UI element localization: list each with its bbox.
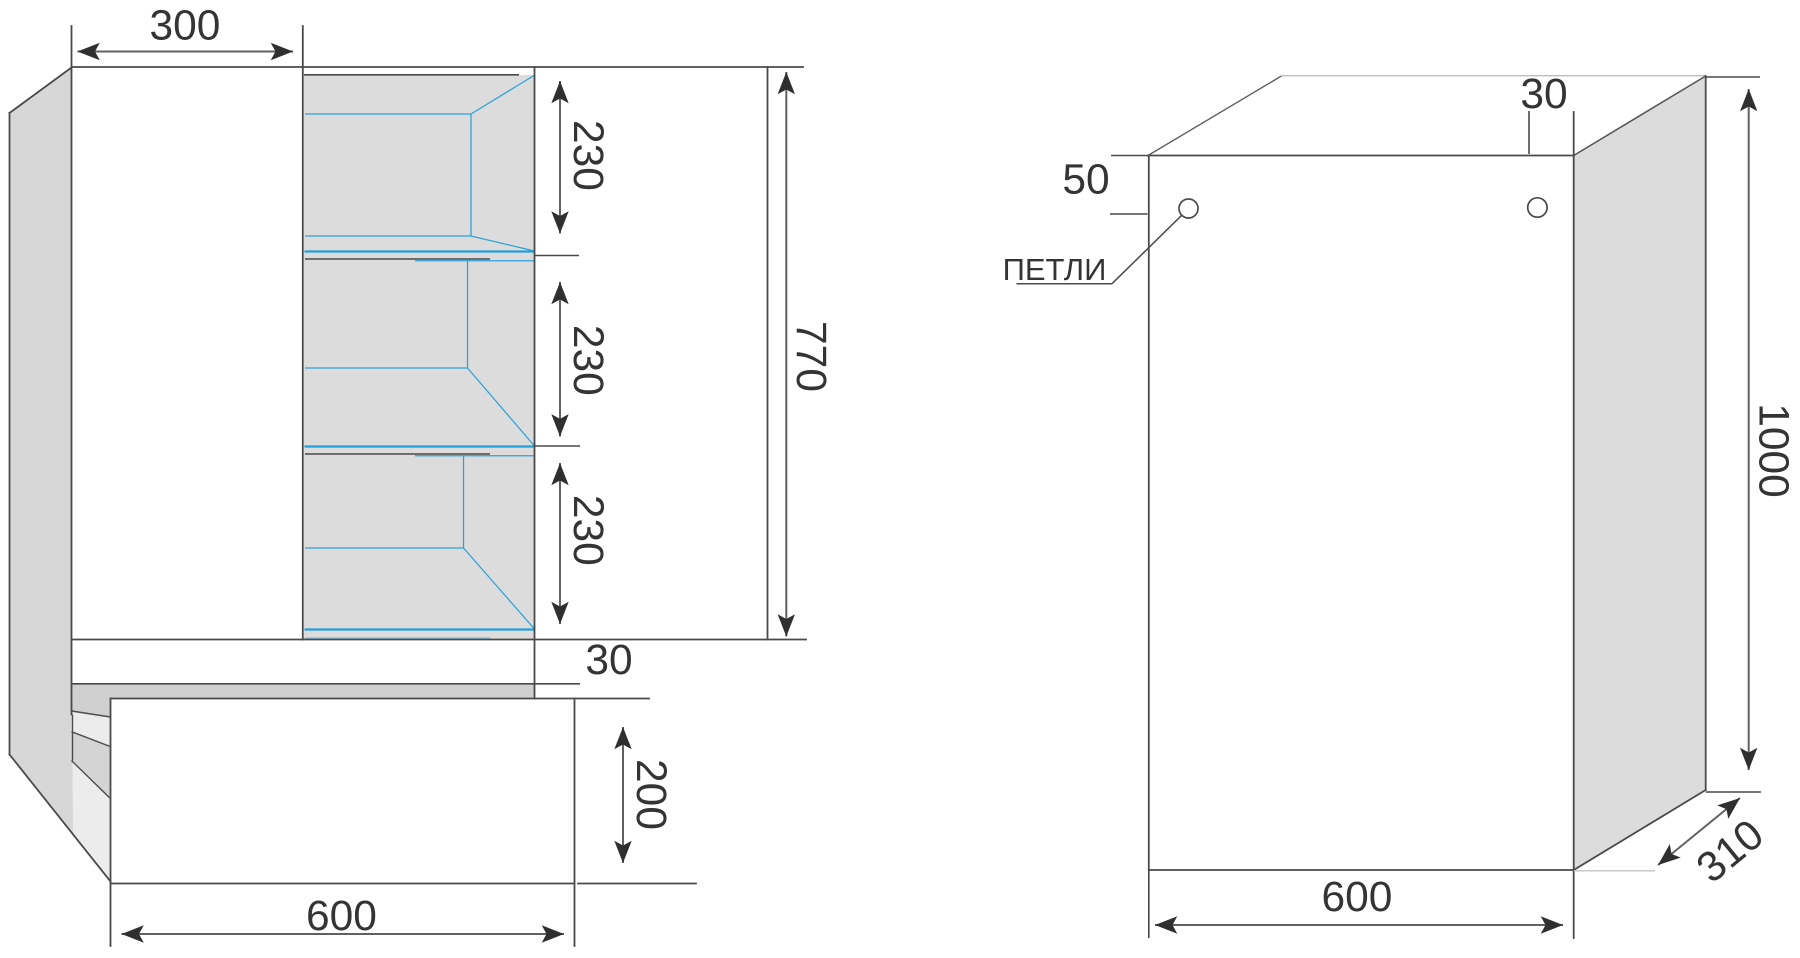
svg-text:1000: 1000 <box>1750 403 1797 498</box>
svg-text:230: 230 <box>564 325 611 396</box>
svg-text:200: 200 <box>627 759 674 830</box>
svg-text:230: 230 <box>564 120 611 191</box>
svg-text:230: 230 <box>564 495 611 566</box>
svg-text:300: 300 <box>150 3 221 50</box>
svg-text:600: 600 <box>1322 874 1393 921</box>
svg-text:30: 30 <box>585 637 632 684</box>
svg-text:ПЕТЛИ: ПЕТЛИ <box>1003 252 1107 287</box>
svg-text:600: 600 <box>306 893 377 940</box>
svg-text:50: 50 <box>1062 157 1109 204</box>
svg-text:770: 770 <box>787 321 834 392</box>
svg-text:30: 30 <box>1520 71 1567 118</box>
